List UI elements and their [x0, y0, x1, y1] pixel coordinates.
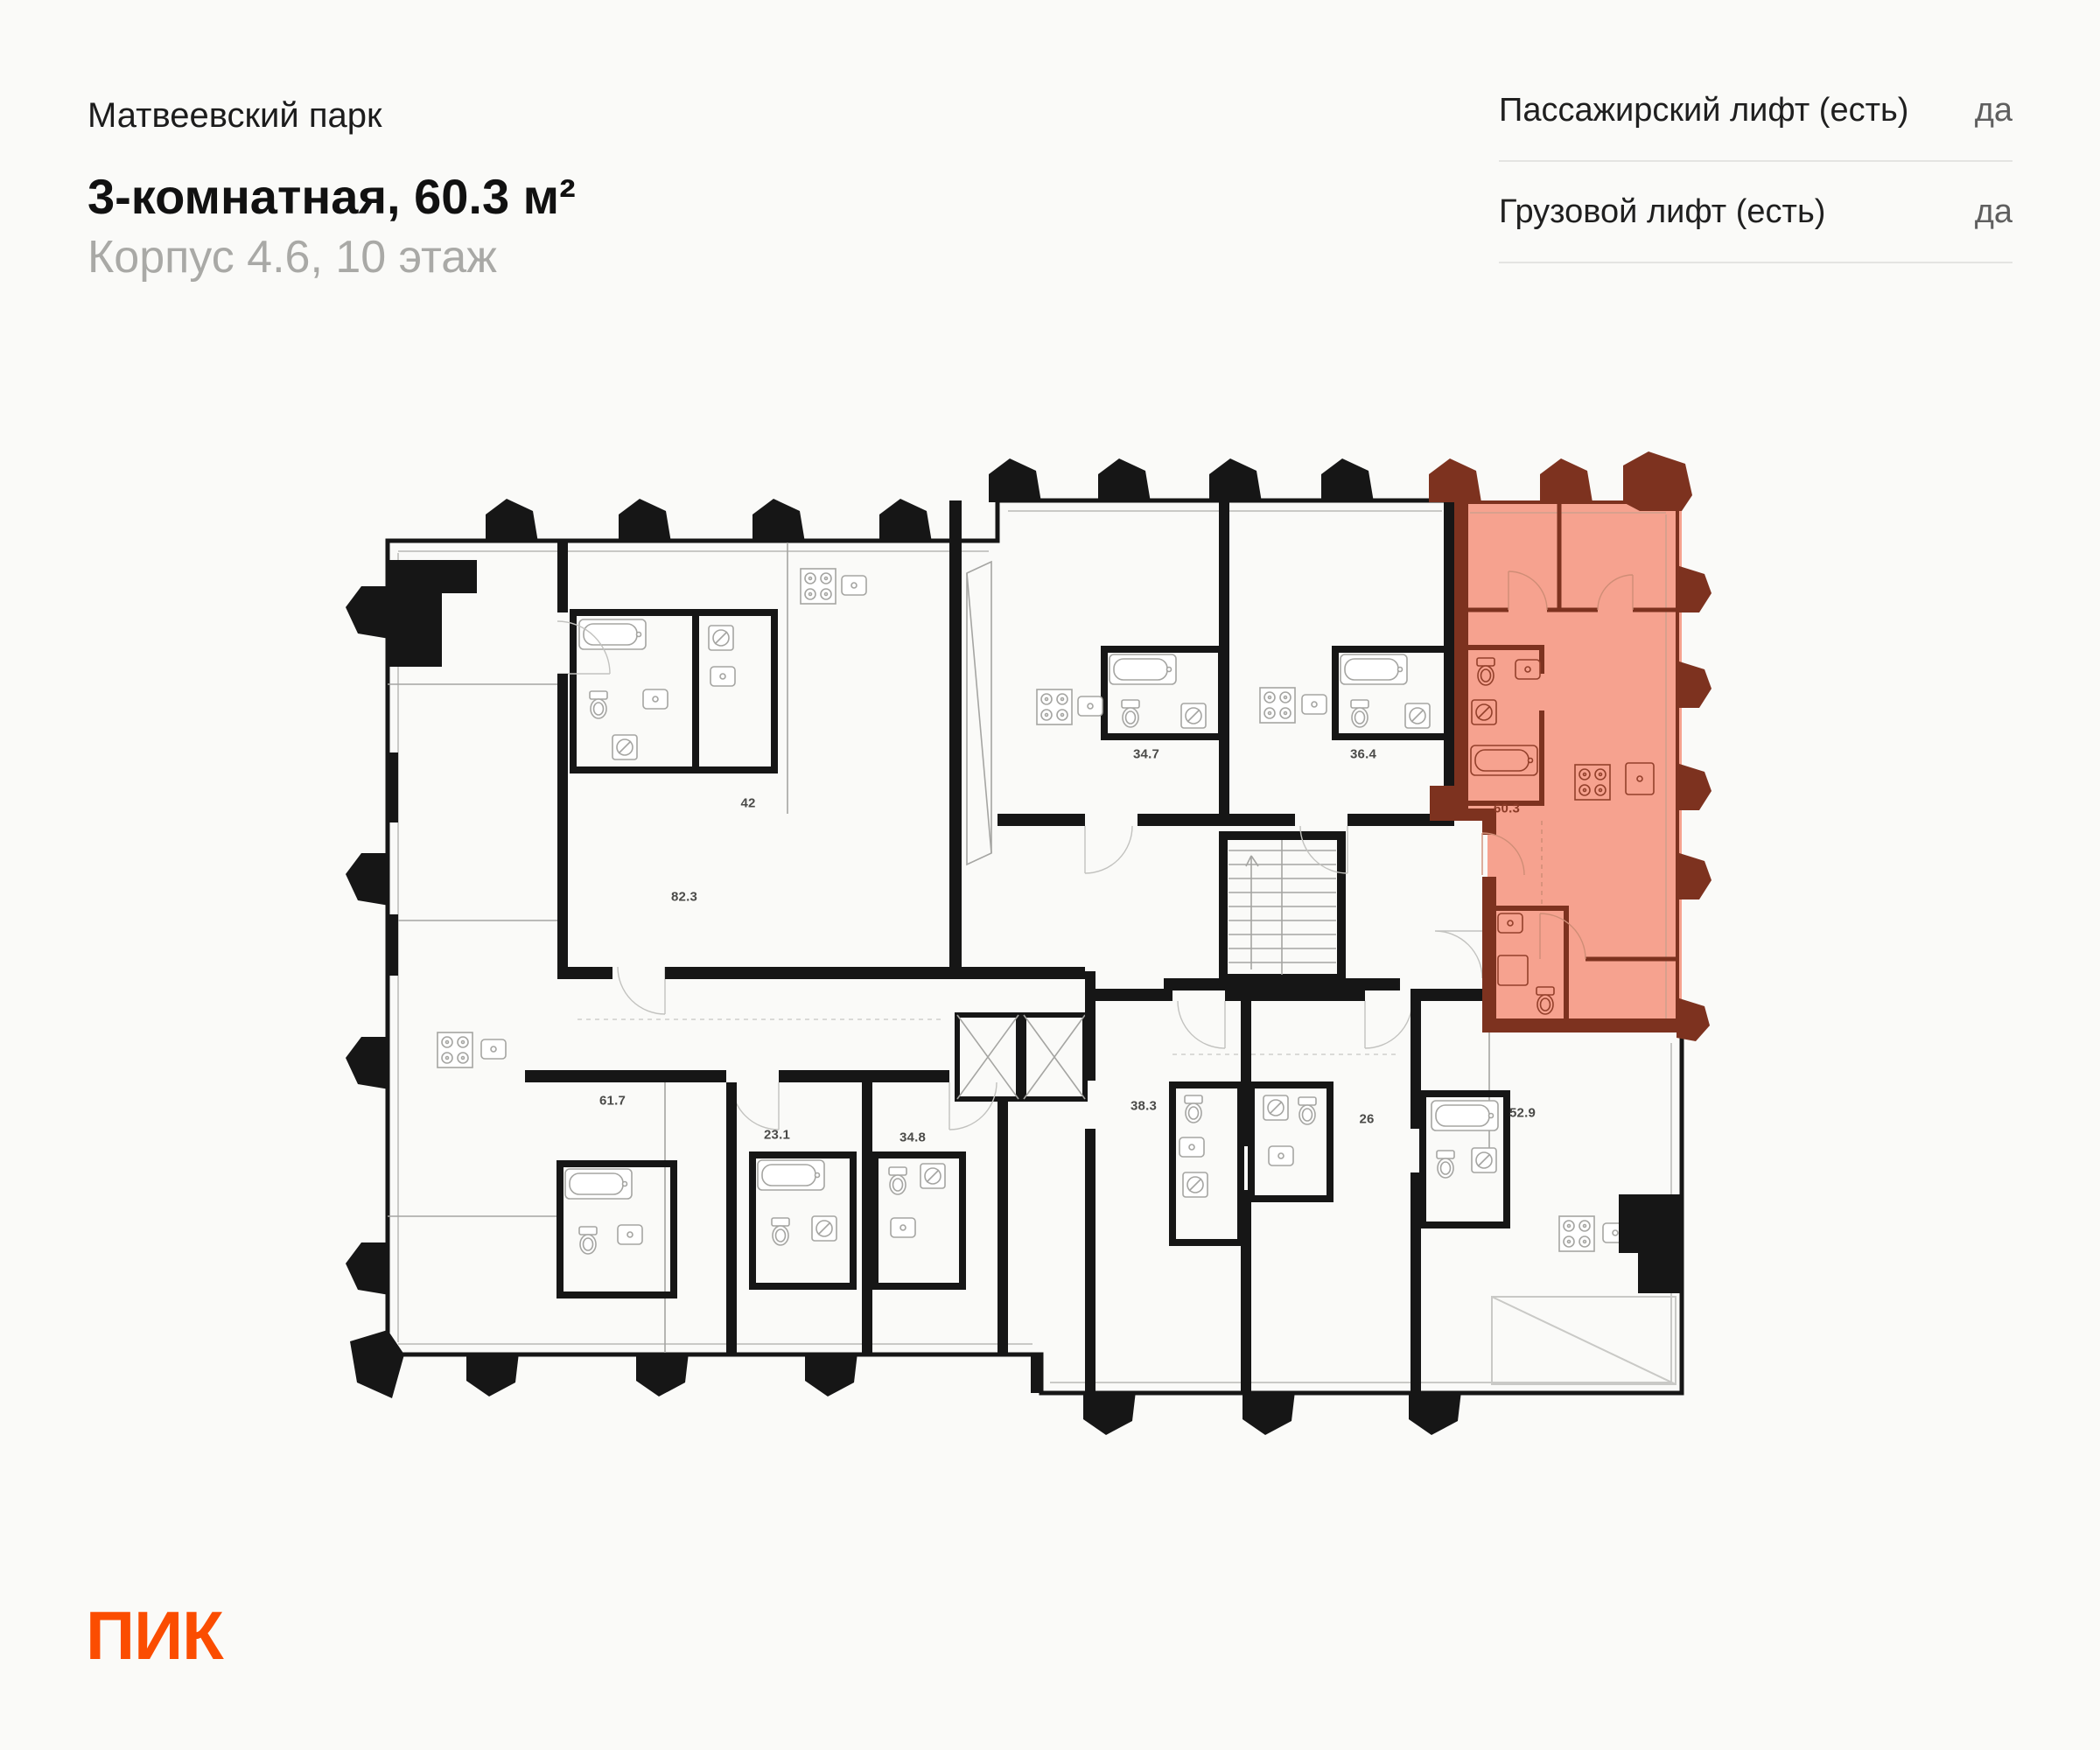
room-area-label: 82.3: [671, 890, 697, 905]
room-area-label: 36.4: [1350, 747, 1376, 762]
room-area-label: 34.7: [1133, 747, 1159, 762]
room-area-label: 52.9: [1509, 1106, 1536, 1121]
room-area-label: 34.8: [899, 1130, 926, 1145]
room-area-label: 23.1: [764, 1128, 790, 1143]
room-area-label: 61.7: [599, 1094, 626, 1109]
room-area-label: 38.3: [1130, 1099, 1157, 1114]
floor-plan: [0, 0, 2100, 1750]
room-area-label: 26: [1359, 1112, 1374, 1127]
apartment-card: Матвеевский парк 3-комнатная, 60.3 м² Ко…: [0, 0, 2100, 1750]
pik-logo: ПИК: [86, 1596, 223, 1676]
highlighted-room-area-label: 60.3: [1494, 801, 1520, 816]
room-area-label: 42: [740, 796, 755, 811]
